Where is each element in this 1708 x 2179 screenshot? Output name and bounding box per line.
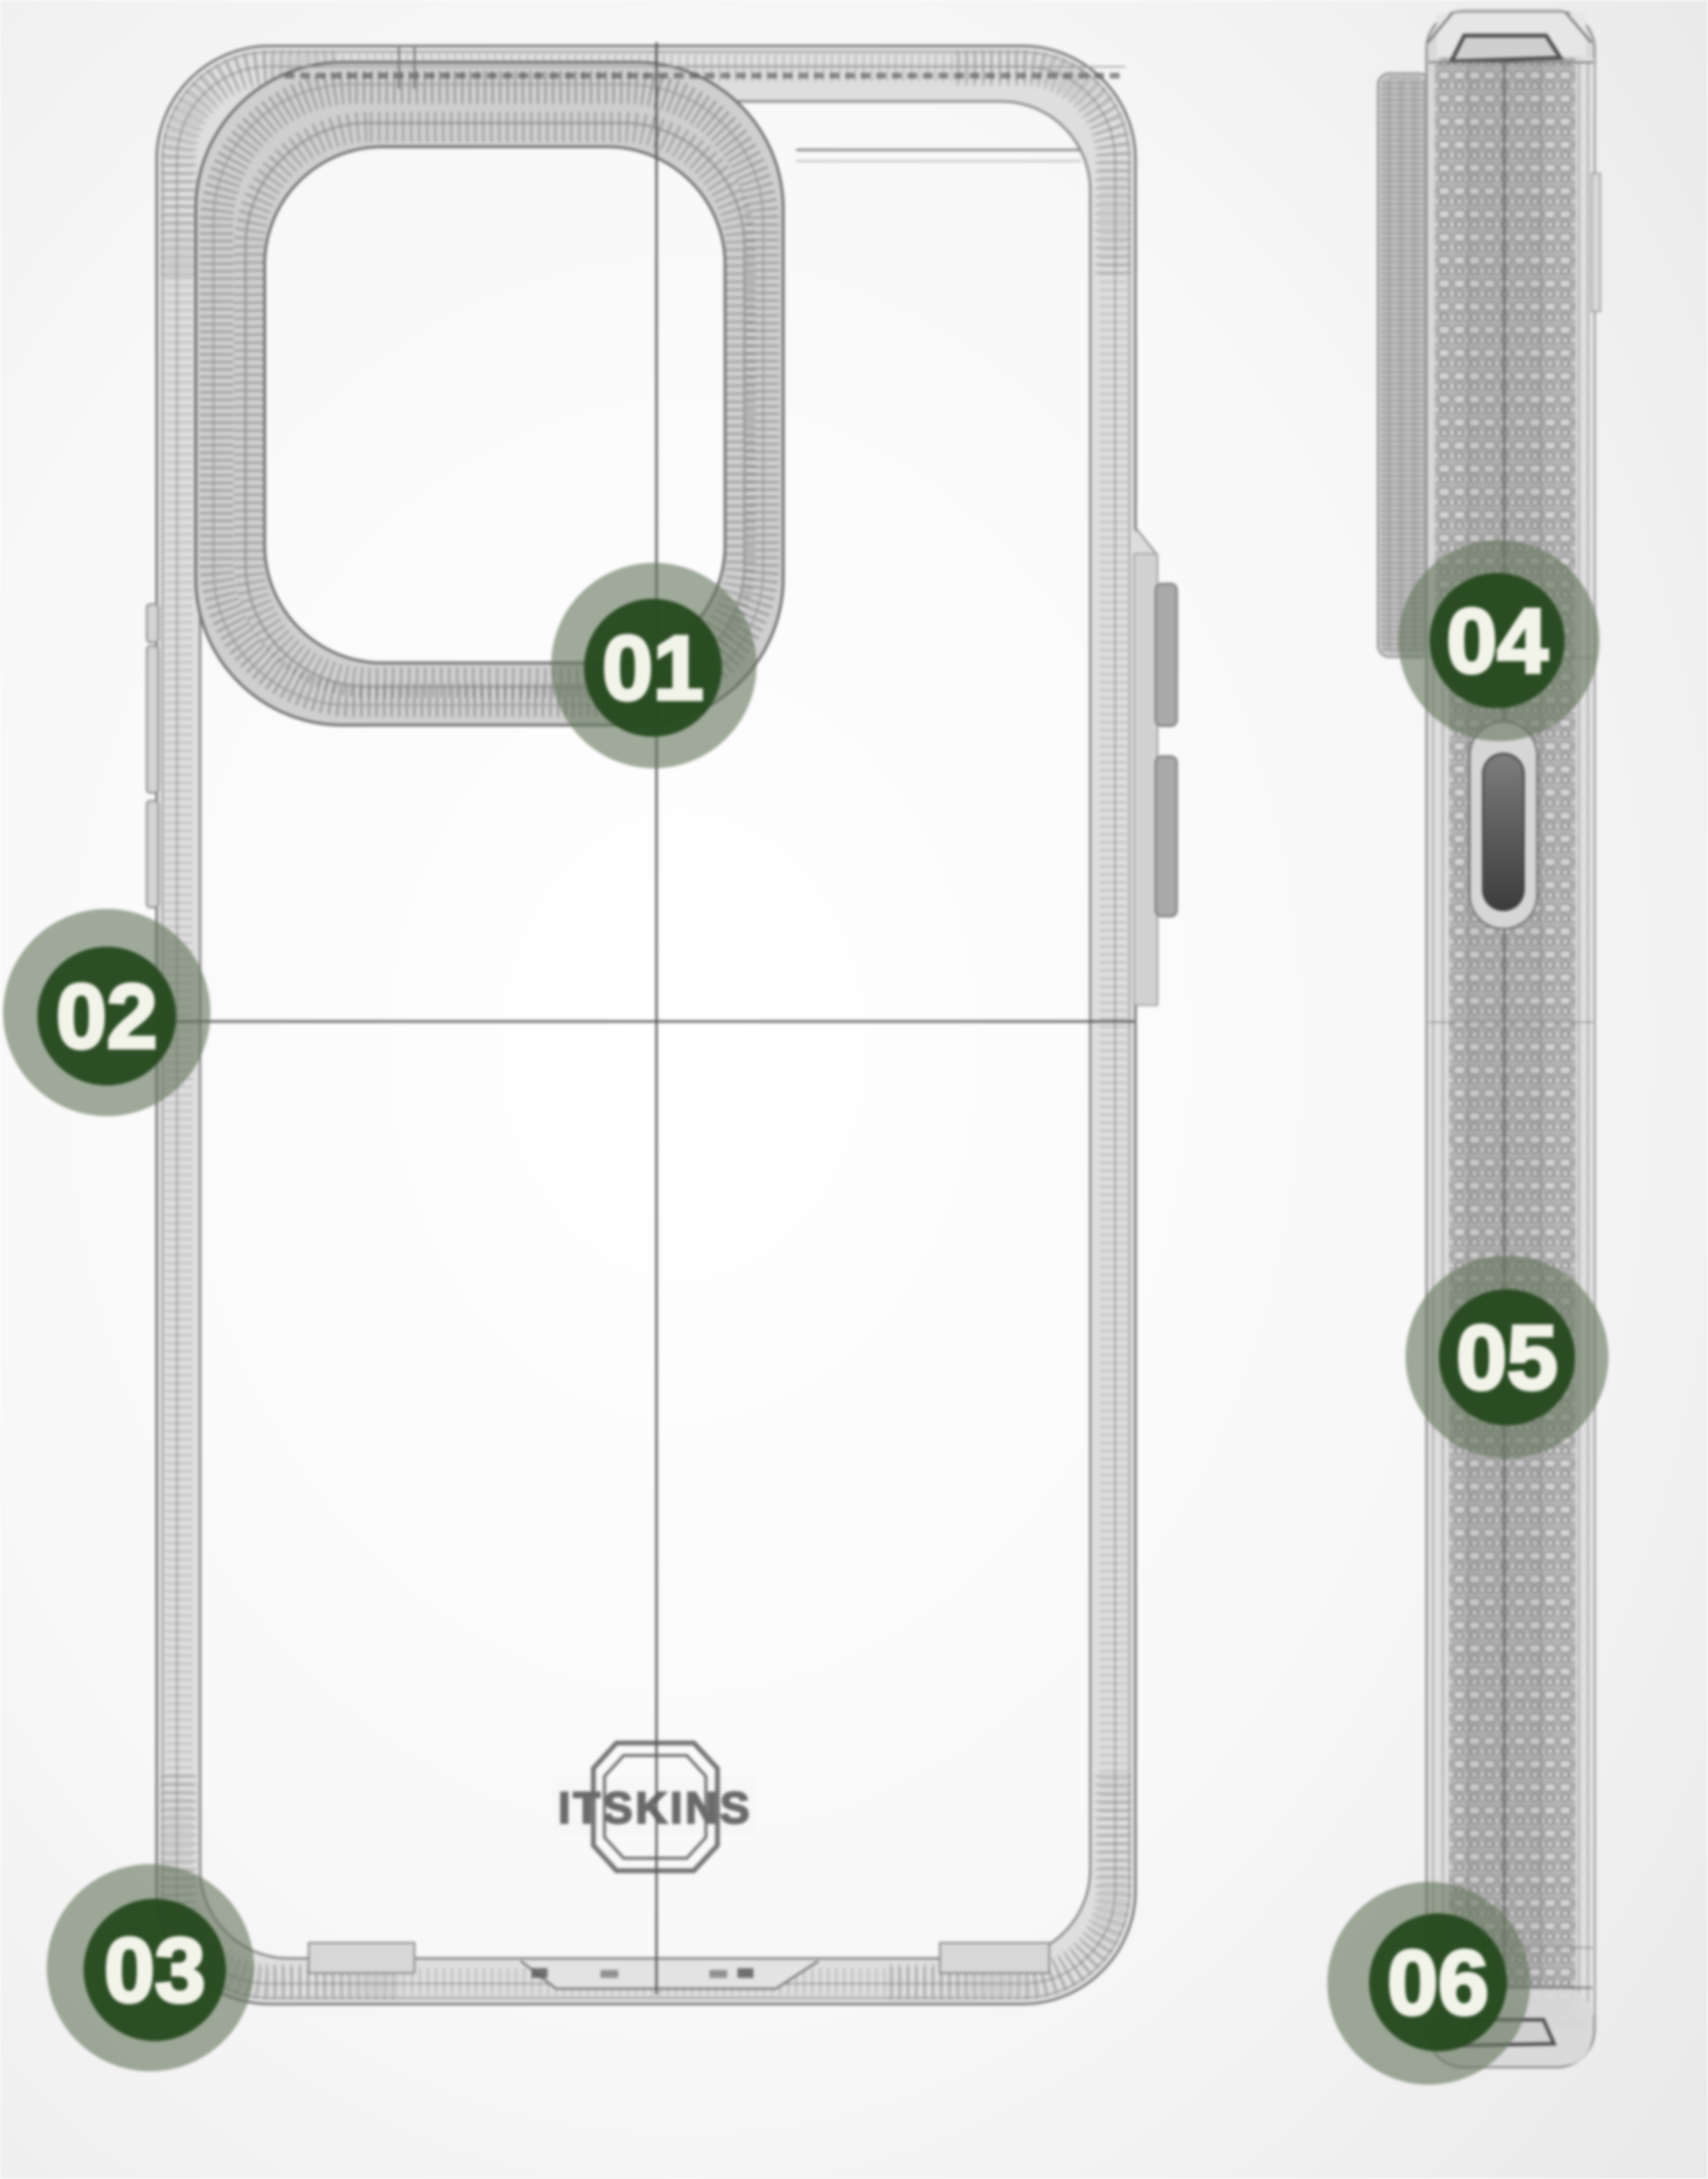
svg-text:03: 03 xyxy=(104,1919,205,2021)
svg-text:01: 01 xyxy=(602,617,704,719)
svg-text:02: 02 xyxy=(56,965,157,1067)
svg-text:04: 04 xyxy=(1446,590,1548,692)
svg-text:ITSKINS: ITSKINS xyxy=(558,1783,752,1833)
svg-text:05: 05 xyxy=(1456,1307,1558,1408)
svg-text:06: 06 xyxy=(1387,1932,1489,2034)
